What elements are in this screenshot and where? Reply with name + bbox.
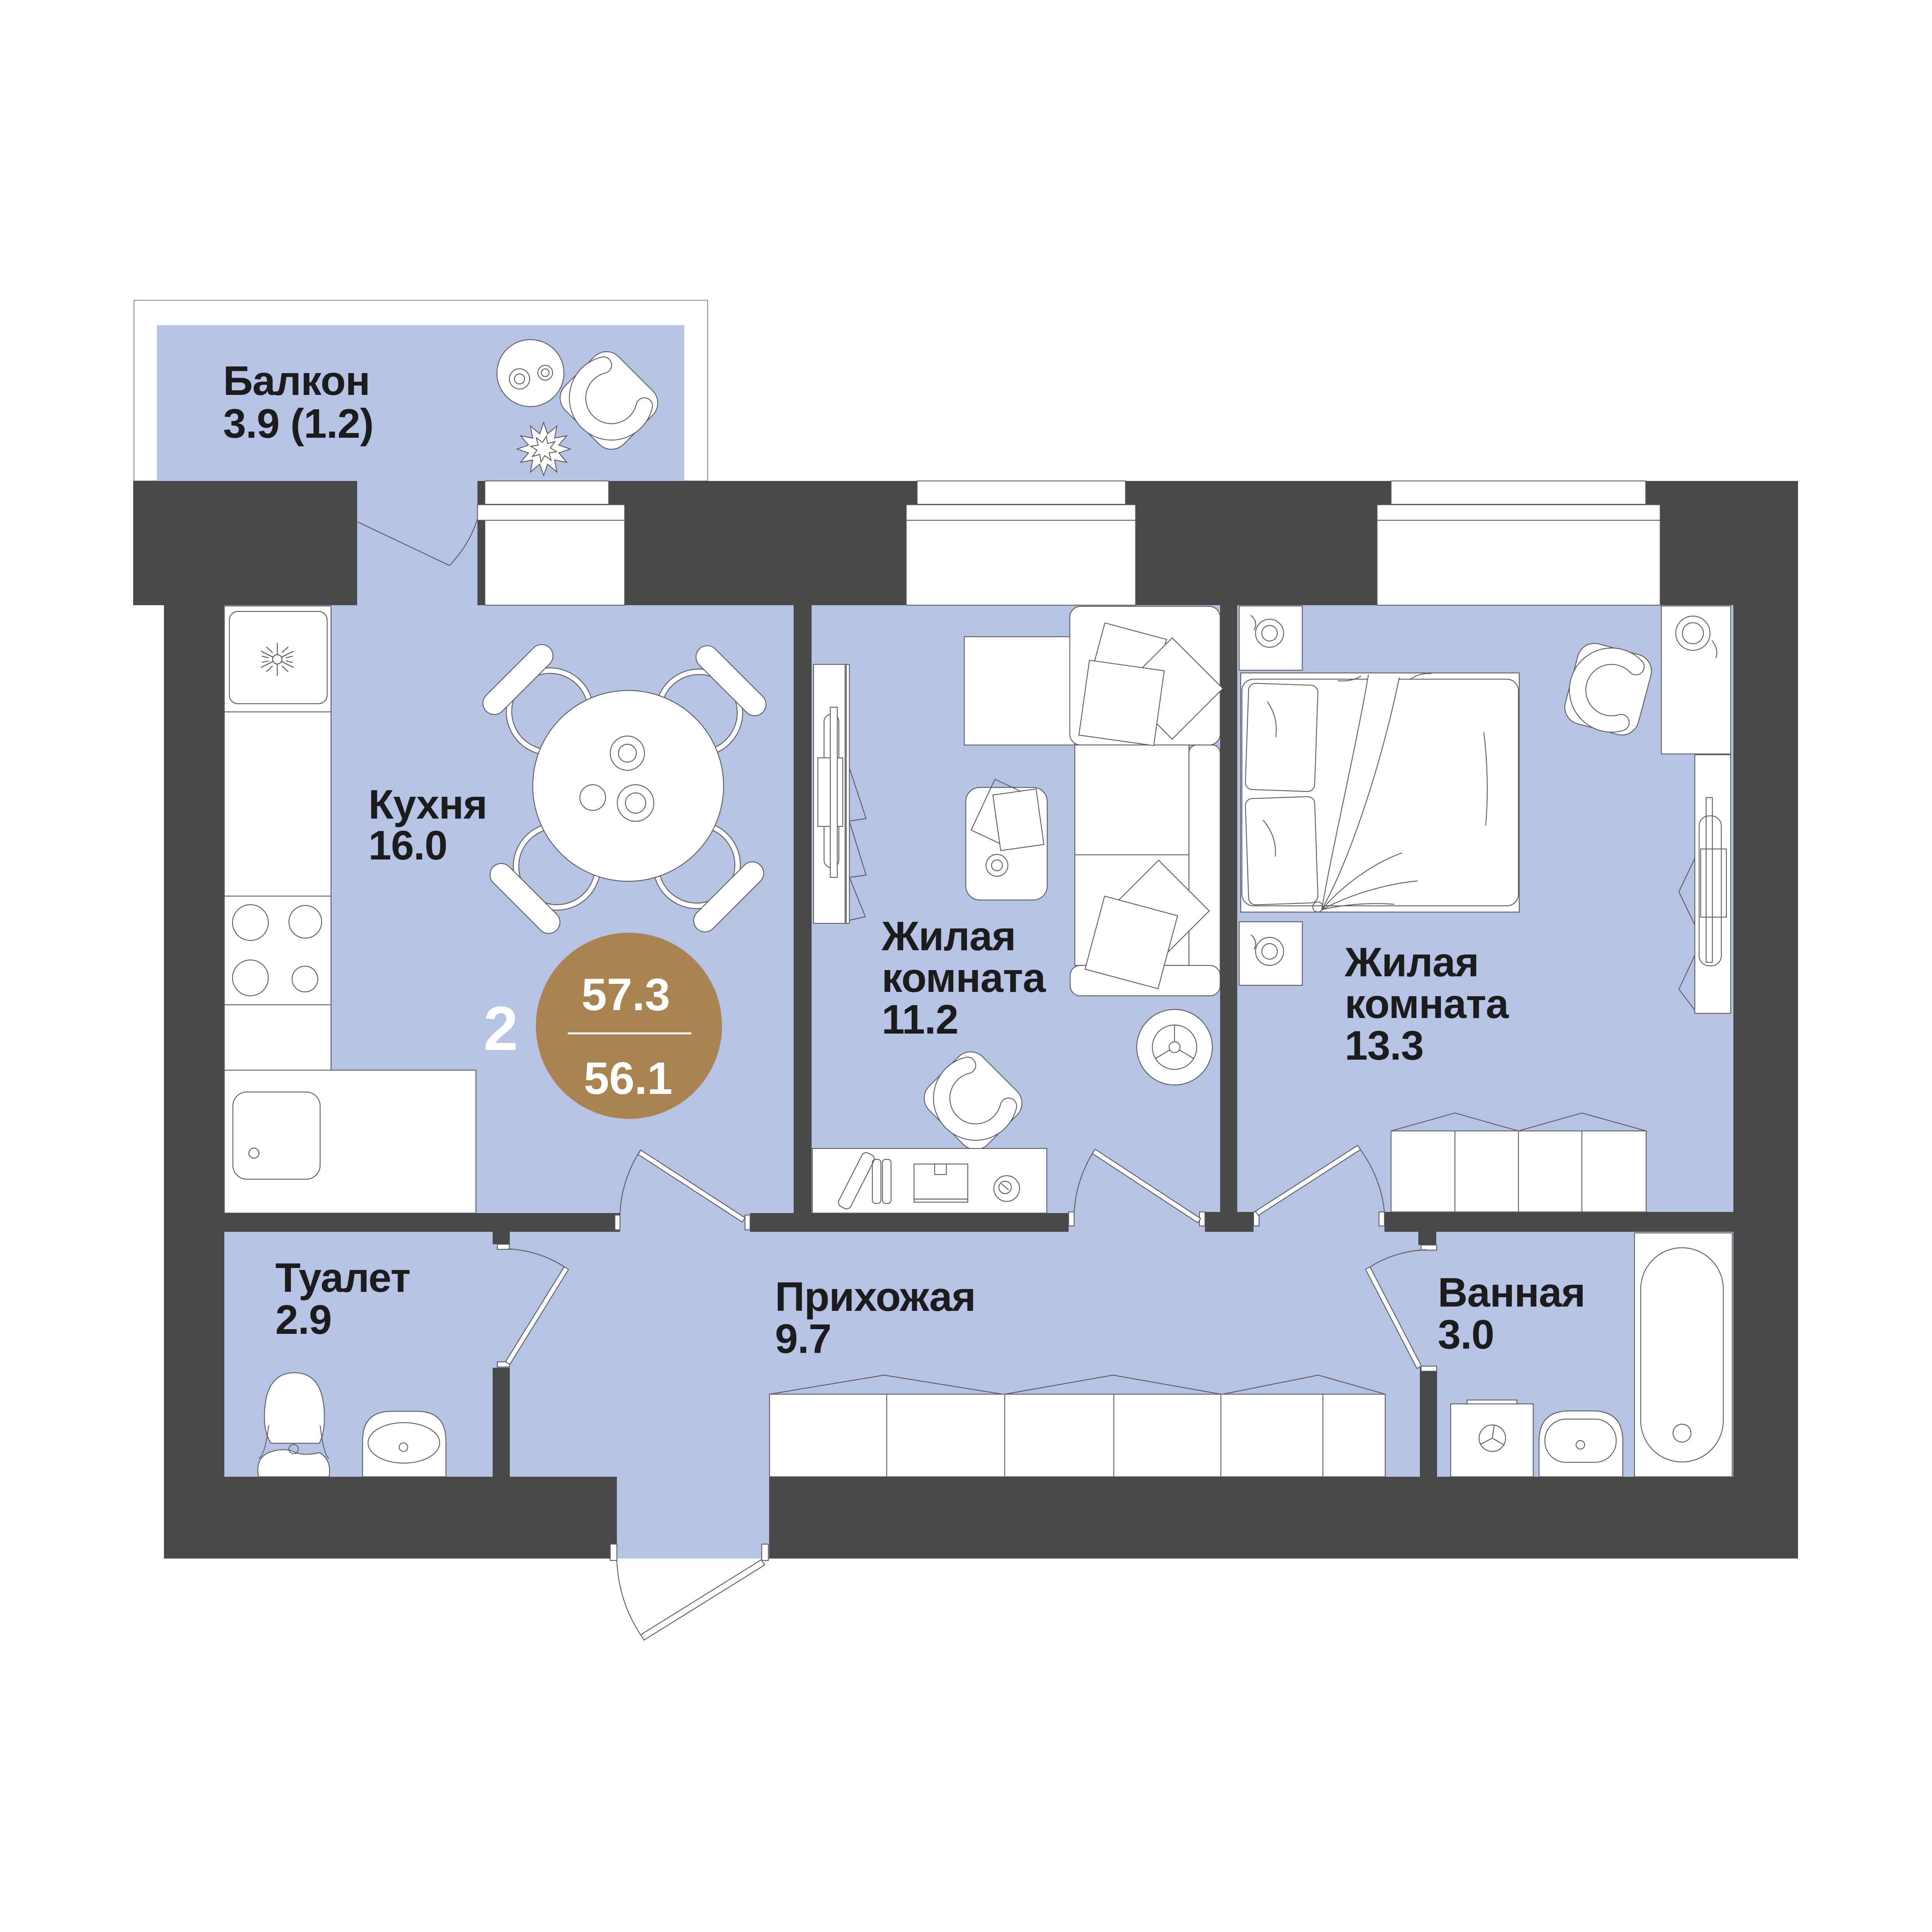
svg-text:56.1: 56.1 bbox=[584, 1053, 673, 1104]
svg-text:Туалет: Туалет bbox=[275, 1255, 410, 1301]
svg-text:3.9 (1.2): 3.9 (1.2) bbox=[223, 401, 373, 447]
svg-text:Кухня: Кухня bbox=[368, 782, 487, 828]
svg-text:57.3: 57.3 bbox=[581, 969, 670, 1020]
svg-text:Жилая: Жилая bbox=[1344, 939, 1479, 985]
svg-text:2.9: 2.9 bbox=[275, 1297, 331, 1343]
svg-text:13.3: 13.3 bbox=[1345, 1023, 1423, 1069]
svg-text:Прихожая: Прихожая bbox=[775, 1274, 976, 1320]
svg-text:Балкон: Балкон bbox=[223, 358, 370, 404]
svg-text:2: 2 bbox=[484, 993, 518, 1063]
svg-text:комната: комната bbox=[1345, 981, 1509, 1027]
svg-text:3.0: 3.0 bbox=[1438, 1312, 1494, 1358]
svg-text:16.0: 16.0 bbox=[368, 822, 447, 868]
svg-text:комната: комната bbox=[882, 955, 1046, 1001]
svg-text:Ванная: Ванная bbox=[1438, 1270, 1585, 1316]
svg-text:11.2: 11.2 bbox=[882, 997, 958, 1043]
svg-text:Жилая: Жилая bbox=[881, 913, 1016, 959]
svg-text:9.7: 9.7 bbox=[775, 1316, 831, 1362]
